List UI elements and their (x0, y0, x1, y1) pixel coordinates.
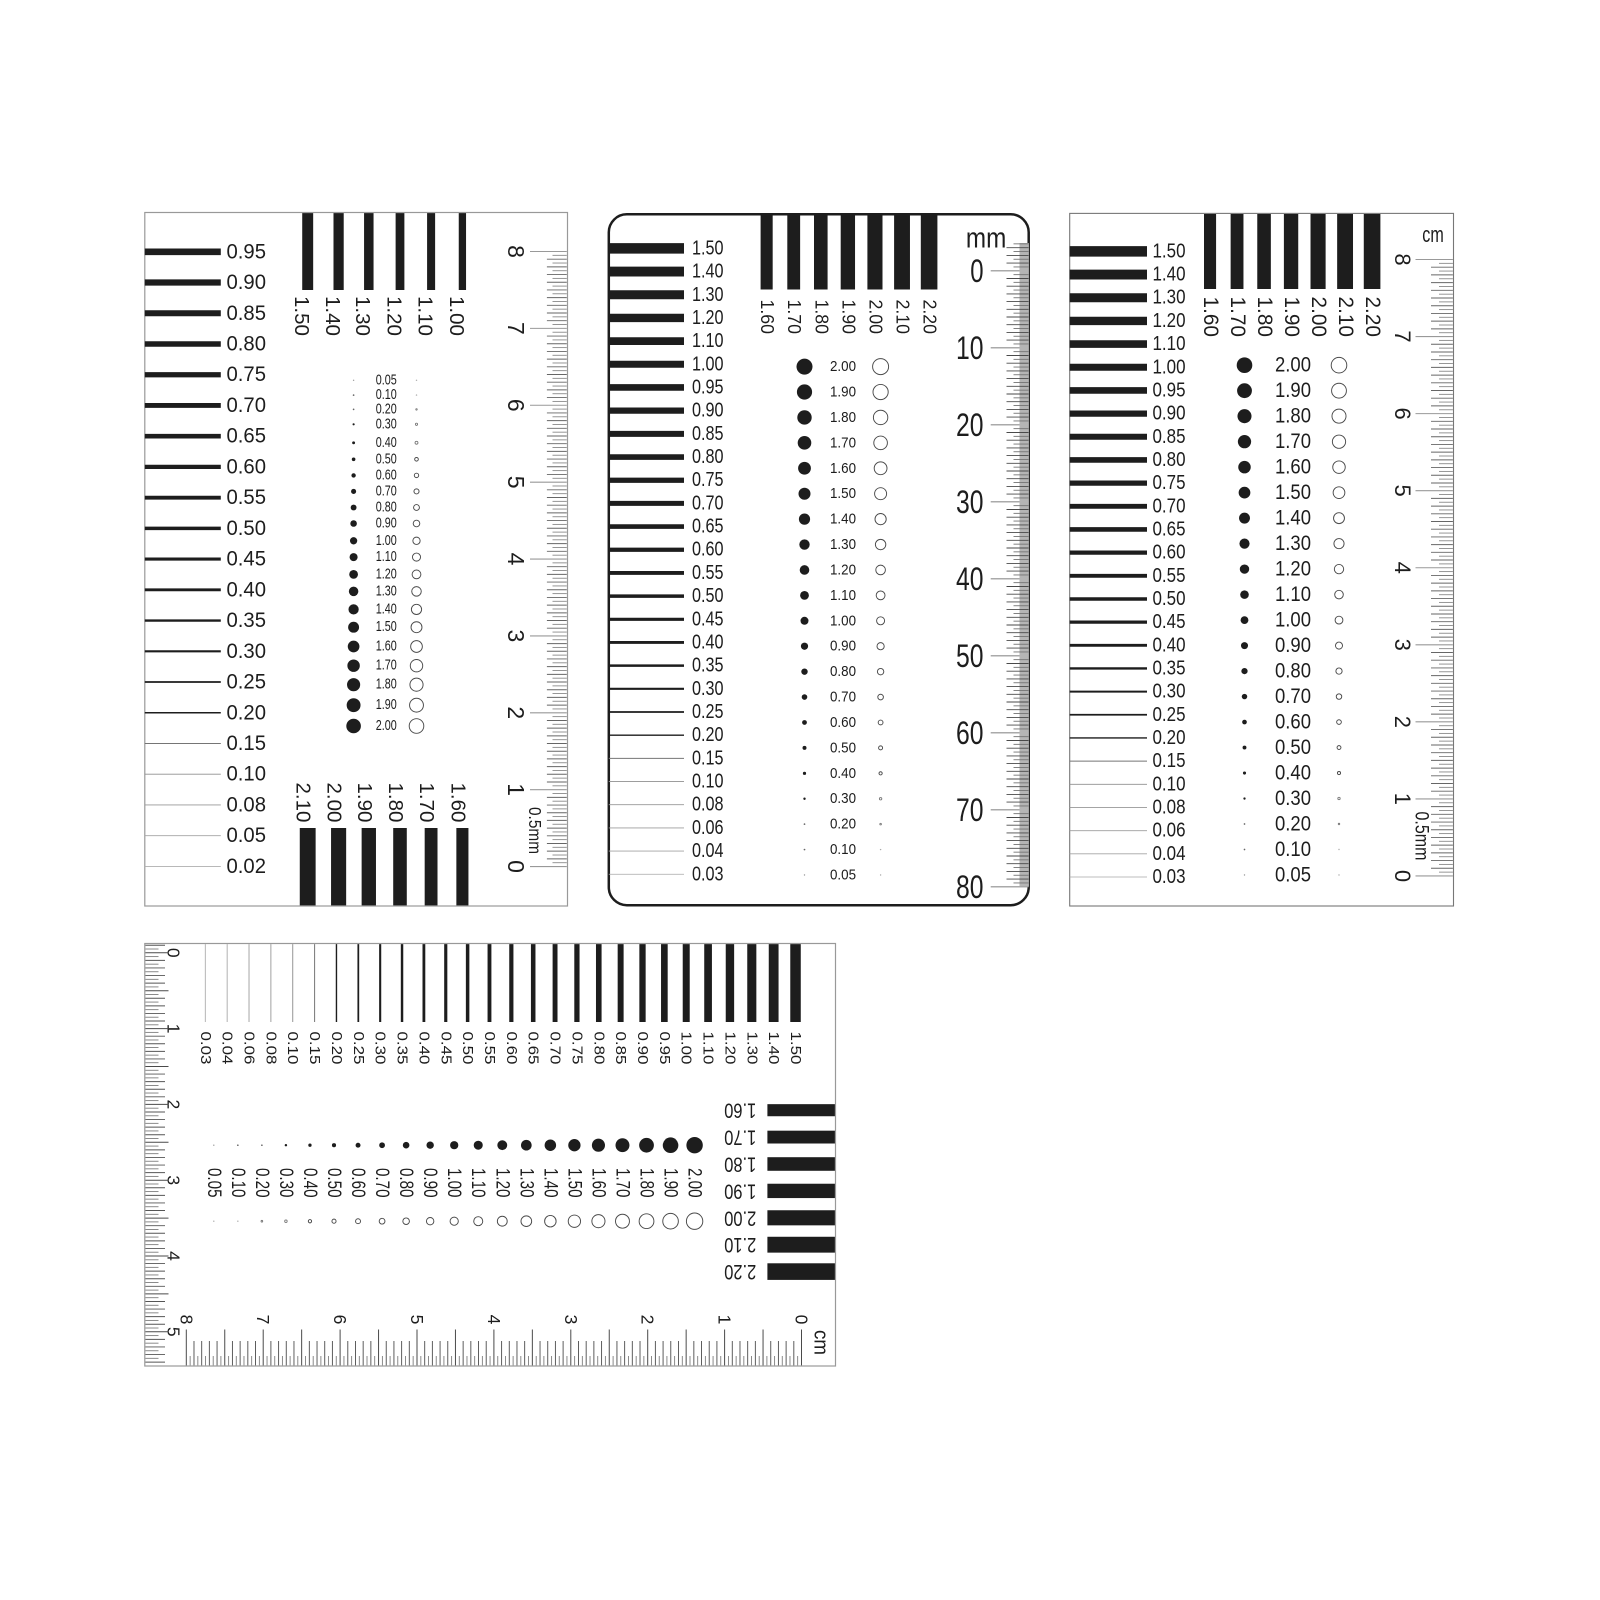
svg-text:1.20: 1.20 (830, 561, 856, 578)
svg-text:0.40: 0.40 (1275, 762, 1311, 785)
svg-text:1.20: 1.20 (382, 296, 404, 336)
svg-text:2.00: 2.00 (724, 1206, 756, 1229)
svg-text:0.20: 0.20 (692, 724, 724, 746)
svg-text:0.10: 0.10 (227, 763, 267, 786)
svg-text:1.90: 1.90 (838, 300, 858, 335)
svg-text:0.5mm: 0.5mm (1411, 812, 1432, 861)
svg-text:0.50: 0.50 (376, 451, 397, 467)
svg-text:0.50: 0.50 (830, 739, 856, 756)
svg-text:0.75: 0.75 (1153, 472, 1186, 494)
svg-text:0.03: 0.03 (1153, 866, 1186, 888)
svg-text:0.10: 0.10 (1275, 838, 1311, 861)
svg-text:0.15: 0.15 (692, 747, 724, 769)
svg-text:0.15: 0.15 (306, 1032, 323, 1065)
svg-text:0.20: 0.20 (251, 1168, 273, 1198)
svg-text:2.00: 2.00 (830, 358, 856, 375)
svg-text:1.00: 1.00 (678, 1032, 695, 1065)
svg-text:60: 60 (956, 715, 984, 751)
svg-text:0.70: 0.70 (1275, 685, 1311, 708)
svg-text:1.00: 1.00 (376, 533, 397, 549)
svg-text:3: 3 (1390, 639, 1415, 651)
svg-text:0.65: 0.65 (1153, 518, 1186, 540)
svg-text:1.60: 1.60 (587, 1168, 609, 1198)
svg-text:0.60: 0.60 (692, 539, 724, 561)
svg-text:1: 1 (1390, 793, 1415, 805)
svg-text:1.40: 1.40 (830, 511, 856, 528)
svg-text:0.50: 0.50 (227, 517, 267, 540)
svg-text:1.10: 1.10 (376, 549, 397, 565)
svg-text:0.08: 0.08 (692, 794, 724, 816)
svg-text:1.80: 1.80 (811, 300, 831, 335)
svg-text:8: 8 (1390, 253, 1415, 265)
svg-text:1.60: 1.60 (830, 460, 856, 477)
svg-text:1.40: 1.40 (539, 1168, 561, 1198)
svg-text:0.85: 0.85 (692, 423, 724, 445)
svg-text:2.20: 2.20 (724, 1260, 756, 1283)
svg-text:1.20: 1.20 (721, 1032, 738, 1065)
svg-text:0.35: 0.35 (394, 1032, 411, 1065)
svg-text:1.80: 1.80 (384, 783, 406, 823)
svg-text:0.60: 0.60 (376, 467, 397, 483)
svg-text:1.00: 1.00 (1153, 356, 1186, 378)
svg-text:0.45: 0.45 (692, 608, 724, 630)
svg-text:0.30: 0.30 (275, 1168, 297, 1198)
svg-text:1: 1 (503, 783, 529, 796)
svg-text:0.70: 0.70 (1153, 495, 1186, 517)
svg-text:0.55: 0.55 (692, 562, 724, 584)
svg-text:0.05: 0.05 (830, 867, 856, 884)
svg-text:0.85: 0.85 (227, 302, 267, 325)
svg-text:0.45: 0.45 (437, 1032, 454, 1065)
svg-text:2: 2 (503, 706, 529, 719)
svg-text:2.20: 2.20 (1361, 297, 1384, 338)
svg-text:5: 5 (503, 476, 529, 489)
svg-text:1.90: 1.90 (1275, 379, 1311, 402)
svg-text:0.5mm: 0.5mm (525, 807, 545, 854)
svg-text:0.80: 0.80 (692, 446, 724, 468)
svg-text:0.50: 0.50 (1153, 588, 1186, 610)
svg-text:40: 40 (956, 561, 984, 597)
svg-text:0.10: 0.10 (227, 1168, 249, 1198)
svg-text:0.80: 0.80 (227, 332, 267, 355)
svg-text:1.20: 1.20 (692, 307, 724, 329)
svg-text:0.90: 0.90 (634, 1032, 651, 1065)
svg-text:0.50: 0.50 (692, 585, 724, 607)
svg-text:0.40: 0.40 (299, 1168, 321, 1198)
svg-text:1.80: 1.80 (830, 409, 856, 426)
svg-text:30: 30 (956, 484, 984, 520)
svg-text:10: 10 (956, 330, 984, 366)
svg-text:80: 80 (956, 869, 984, 905)
svg-text:0.90: 0.90 (376, 516, 397, 532)
svg-text:2.00: 2.00 (323, 783, 345, 823)
svg-text:0.06: 0.06 (692, 817, 724, 839)
svg-text:0.25: 0.25 (1153, 704, 1186, 726)
svg-text:1.20: 1.20 (1275, 558, 1311, 581)
svg-text:0.03: 0.03 (197, 1032, 214, 1065)
svg-text:1.10: 1.10 (692, 330, 724, 352)
svg-text:50: 50 (956, 638, 984, 674)
svg-text:1.60: 1.60 (1199, 297, 1222, 338)
svg-text:1.60: 1.60 (446, 783, 468, 823)
svg-text:0.08: 0.08 (262, 1032, 279, 1065)
svg-text:1.80: 1.80 (376, 677, 397, 693)
svg-text:0.30: 0.30 (227, 640, 267, 663)
svg-text:0.50: 0.50 (459, 1032, 476, 1065)
svg-text:0.90: 0.90 (227, 271, 267, 294)
svg-text:2.00: 2.00 (865, 300, 885, 335)
svg-text:0.45: 0.45 (1153, 611, 1186, 633)
svg-text:1.70: 1.70 (1275, 430, 1311, 453)
svg-text:0.08: 0.08 (227, 793, 267, 816)
svg-text:0.60: 0.60 (347, 1168, 369, 1198)
svg-text:0.50: 0.50 (323, 1168, 345, 1198)
svg-text:0.15: 0.15 (1153, 750, 1186, 772)
svg-text:1.60: 1.60 (1275, 456, 1311, 479)
svg-text:1.70: 1.70 (830, 434, 856, 451)
svg-text:3: 3 (503, 630, 529, 643)
svg-text:1.90: 1.90 (1280, 297, 1303, 338)
svg-text:0.70: 0.70 (830, 689, 856, 706)
svg-text:0.25: 0.25 (227, 671, 267, 694)
svg-text:0.75: 0.75 (568, 1032, 585, 1065)
svg-text:0: 0 (792, 1315, 812, 1325)
svg-text:1.30: 1.30 (830, 536, 856, 553)
svg-text:0.40: 0.40 (1153, 634, 1186, 656)
svg-text:2.00: 2.00 (1307, 297, 1330, 338)
svg-text:1.60: 1.60 (724, 1099, 756, 1122)
svg-text:1.00: 1.00 (443, 1168, 465, 1198)
svg-text:cm: cm (810, 1330, 832, 1355)
svg-text:0.06: 0.06 (1153, 820, 1186, 842)
svg-text:0.03: 0.03 (692, 863, 724, 885)
svg-text:0.60: 0.60 (1275, 711, 1311, 734)
svg-text:2.20: 2.20 (920, 300, 940, 335)
svg-text:1.90: 1.90 (660, 1168, 682, 1198)
svg-text:1.80: 1.80 (724, 1153, 756, 1176)
svg-text:0.80: 0.80 (1153, 449, 1186, 471)
svg-text:0.70: 0.70 (692, 492, 724, 514)
svg-text:0.55: 0.55 (481, 1032, 498, 1065)
svg-text:0.55: 0.55 (227, 486, 267, 509)
svg-text:6: 6 (1390, 407, 1415, 419)
svg-text:0.70: 0.70 (376, 483, 397, 499)
svg-text:0.95: 0.95 (656, 1032, 673, 1065)
svg-text:1.00: 1.00 (445, 296, 467, 336)
svg-text:1.70: 1.70 (784, 300, 804, 335)
svg-text:1.70: 1.70 (1226, 297, 1249, 338)
svg-text:0.60: 0.60 (227, 455, 267, 478)
svg-text:0.70: 0.70 (547, 1032, 564, 1065)
svg-text:6: 6 (503, 399, 529, 412)
svg-text:0.20: 0.20 (1153, 727, 1186, 749)
svg-text:1.50: 1.50 (563, 1168, 585, 1198)
svg-text:0: 0 (503, 860, 529, 873)
svg-text:0.20: 0.20 (1275, 813, 1311, 836)
svg-text:0.80: 0.80 (395, 1168, 417, 1198)
svg-text:1.10: 1.10 (414, 296, 436, 336)
svg-text:0.90: 0.90 (1153, 403, 1186, 425)
svg-text:0.45: 0.45 (227, 548, 267, 571)
svg-text:5: 5 (407, 1315, 427, 1325)
svg-text:0.30: 0.30 (1275, 787, 1311, 810)
svg-text:0.30: 0.30 (830, 790, 856, 807)
svg-text:1.30: 1.30 (1275, 532, 1311, 555)
svg-text:0.65: 0.65 (227, 425, 267, 448)
svg-text:0.85: 0.85 (1153, 426, 1186, 448)
svg-text:1.50: 1.50 (692, 237, 724, 259)
svg-text:1.40: 1.40 (1153, 264, 1186, 286)
svg-text:0.10: 0.10 (692, 771, 724, 793)
svg-text:1.50: 1.50 (830, 485, 856, 502)
svg-text:5: 5 (1390, 485, 1415, 497)
svg-text:1.30: 1.30 (376, 583, 397, 599)
svg-text:mm: mm (966, 222, 1006, 254)
svg-text:1.70: 1.70 (376, 658, 397, 674)
svg-text:1: 1 (715, 1315, 735, 1325)
svg-text:2.00: 2.00 (1275, 354, 1311, 377)
svg-text:0.10: 0.10 (830, 841, 856, 858)
svg-text:0.20: 0.20 (227, 701, 267, 724)
svg-text:1.90: 1.90 (376, 697, 397, 713)
svg-text:1.40: 1.40 (1275, 507, 1311, 530)
svg-text:0.90: 0.90 (692, 400, 724, 422)
svg-text:1.30: 1.30 (515, 1168, 537, 1198)
svg-text:4: 4 (484, 1315, 504, 1325)
svg-text:0.95: 0.95 (227, 240, 267, 263)
svg-text:0.40: 0.40 (830, 765, 856, 782)
svg-text:0.80: 0.80 (830, 663, 856, 680)
svg-text:0.90: 0.90 (419, 1168, 441, 1198)
svg-text:1.50: 1.50 (787, 1032, 804, 1065)
svg-text:1.00: 1.00 (692, 353, 724, 375)
svg-text:1.80: 1.80 (1275, 405, 1311, 428)
svg-text:0.25: 0.25 (692, 701, 724, 723)
svg-text:1.90: 1.90 (724, 1179, 756, 1202)
svg-text:0.30: 0.30 (376, 416, 397, 432)
svg-text:1.10: 1.10 (1275, 583, 1311, 606)
svg-text:1.80: 1.80 (1253, 297, 1276, 338)
svg-text:2.10: 2.10 (292, 783, 314, 823)
svg-text:1.20: 1.20 (1153, 310, 1186, 332)
svg-text:0.04: 0.04 (219, 1032, 236, 1065)
svg-text:0.30: 0.30 (692, 678, 724, 700)
svg-text:0.05: 0.05 (1275, 864, 1311, 887)
svg-text:7: 7 (503, 322, 529, 335)
svg-text:1.10: 1.10 (700, 1032, 717, 1065)
svg-text:0.65: 0.65 (692, 516, 724, 538)
svg-text:1.50: 1.50 (290, 296, 312, 336)
svg-text:6: 6 (330, 1315, 350, 1325)
svg-text:0.08: 0.08 (1153, 796, 1186, 818)
svg-text:1.10: 1.10 (467, 1168, 489, 1198)
svg-text:1.90: 1.90 (830, 384, 856, 401)
svg-text:0.30: 0.30 (372, 1032, 389, 1065)
svg-text:1.40: 1.40 (376, 601, 397, 617)
svg-text:cm: cm (1422, 222, 1444, 247)
svg-text:1.00: 1.00 (830, 612, 856, 629)
svg-text:1.70: 1.70 (724, 1126, 756, 1149)
svg-text:0.80: 0.80 (590, 1032, 607, 1065)
svg-text:4: 4 (1390, 562, 1415, 574)
svg-text:0.60: 0.60 (1153, 542, 1186, 564)
svg-text:0: 0 (1390, 870, 1415, 882)
svg-text:1.40: 1.40 (321, 296, 343, 336)
svg-text:1.40: 1.40 (692, 261, 724, 283)
svg-text:1.30: 1.30 (692, 284, 724, 306)
svg-text:0.50: 0.50 (1275, 736, 1311, 759)
svg-text:0.05: 0.05 (376, 372, 397, 388)
svg-text:2.10: 2.10 (893, 300, 913, 335)
svg-text:0.75: 0.75 (227, 363, 267, 386)
svg-text:0.35: 0.35 (692, 655, 724, 677)
svg-text:0.40: 0.40 (376, 435, 397, 451)
svg-text:0.60: 0.60 (503, 1032, 520, 1065)
svg-text:0.05: 0.05 (227, 824, 267, 847)
svg-text:1.90: 1.90 (353, 783, 375, 823)
svg-text:0.40: 0.40 (692, 631, 724, 653)
svg-text:0.70: 0.70 (371, 1168, 393, 1198)
svg-text:70: 70 (956, 792, 984, 828)
svg-text:1.30: 1.30 (1153, 287, 1186, 309)
svg-text:2: 2 (1390, 716, 1415, 728)
svg-text:3: 3 (561, 1315, 581, 1325)
svg-text:0.40: 0.40 (227, 578, 267, 601)
svg-text:1.70: 1.70 (415, 783, 437, 823)
svg-text:1.60: 1.60 (757, 300, 777, 335)
svg-text:0.75: 0.75 (692, 469, 724, 491)
svg-text:2.10: 2.10 (1334, 297, 1357, 338)
svg-text:0.10: 0.10 (284, 1032, 301, 1065)
svg-text:0.80: 0.80 (376, 500, 397, 516)
svg-text:0.40: 0.40 (415, 1032, 432, 1065)
svg-text:1.30: 1.30 (743, 1032, 760, 1065)
svg-text:0: 0 (970, 253, 983, 289)
svg-text:0.04: 0.04 (692, 840, 724, 862)
svg-text:1.10: 1.10 (830, 587, 856, 604)
svg-text:1.20: 1.20 (376, 566, 397, 582)
svg-text:7: 7 (1390, 330, 1415, 342)
svg-text:0.04: 0.04 (1153, 843, 1186, 865)
svg-text:7: 7 (253, 1315, 273, 1325)
svg-text:0.35: 0.35 (1153, 657, 1186, 679)
svg-text:1.20: 1.20 (491, 1168, 513, 1198)
svg-text:0.10: 0.10 (1153, 773, 1186, 795)
svg-text:8: 8 (503, 245, 529, 258)
svg-text:0.90: 0.90 (830, 638, 856, 655)
svg-text:0.02: 0.02 (227, 855, 267, 878)
svg-text:0.55: 0.55 (1153, 565, 1186, 587)
svg-text:1.60: 1.60 (376, 639, 397, 655)
svg-text:0.80: 0.80 (1275, 660, 1311, 683)
svg-text:20: 20 (956, 407, 984, 443)
svg-text:1.50: 1.50 (376, 619, 397, 635)
svg-text:0.05: 0.05 (203, 1168, 225, 1198)
svg-text:1.30: 1.30 (351, 296, 373, 336)
svg-text:0.20: 0.20 (376, 401, 397, 417)
svg-text:0.35: 0.35 (227, 609, 267, 632)
svg-text:0.65: 0.65 (525, 1032, 542, 1065)
svg-text:8: 8 (176, 1315, 196, 1325)
svg-text:1.80: 1.80 (636, 1168, 658, 1198)
svg-text:0.25: 0.25 (350, 1032, 367, 1065)
svg-text:1.10: 1.10 (1153, 333, 1186, 355)
svg-text:0.95: 0.95 (692, 376, 724, 398)
svg-text:0.95: 0.95 (1153, 379, 1186, 401)
svg-text:2: 2 (638, 1315, 658, 1325)
svg-text:0.60: 0.60 (830, 714, 856, 731)
svg-text:2.00: 2.00 (684, 1168, 706, 1198)
svg-text:0.70: 0.70 (227, 394, 267, 417)
svg-text:1.70: 1.70 (611, 1168, 633, 1198)
svg-text:0.06: 0.06 (241, 1032, 258, 1065)
svg-text:1.00: 1.00 (1275, 609, 1311, 632)
svg-text:1.50: 1.50 (1275, 481, 1311, 504)
svg-text:0.90: 0.90 (1275, 634, 1311, 657)
svg-text:4: 4 (503, 553, 529, 566)
svg-text:2.10: 2.10 (724, 1233, 756, 1256)
svg-text:2.00: 2.00 (376, 718, 397, 734)
svg-text:0.15: 0.15 (227, 732, 267, 755)
svg-text:0.20: 0.20 (830, 816, 856, 833)
svg-text:0.20: 0.20 (328, 1032, 345, 1065)
svg-text:0.85: 0.85 (612, 1032, 629, 1065)
svg-text:1.40: 1.40 (765, 1032, 782, 1065)
svg-text:1.50: 1.50 (1153, 240, 1186, 262)
svg-text:0.30: 0.30 (1153, 681, 1186, 703)
